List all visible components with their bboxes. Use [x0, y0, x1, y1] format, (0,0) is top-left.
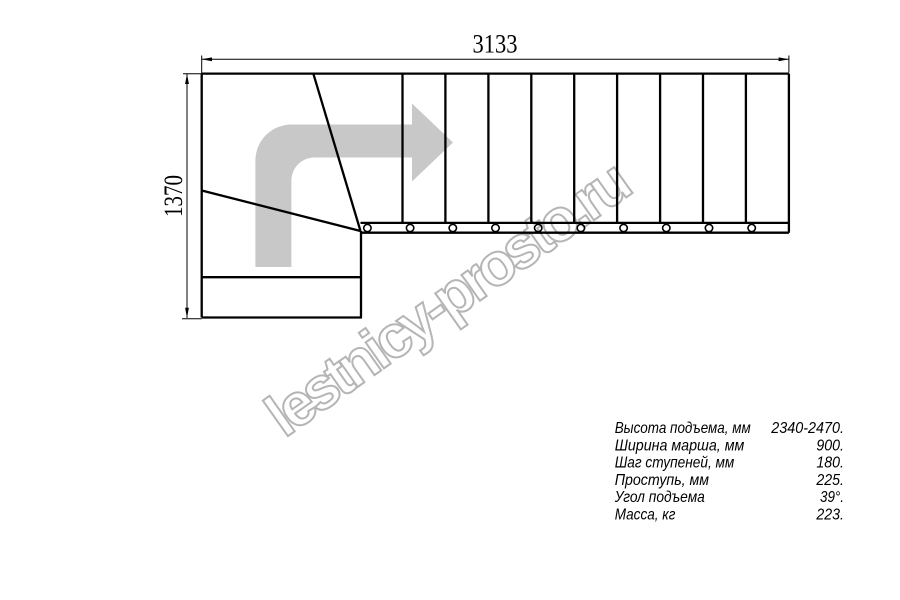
svg-text:Высота подъема, мм: Высота подъема, мм — [615, 420, 751, 437]
svg-text:Проступь, мм: Проступь, мм — [615, 472, 709, 489]
svg-text:lestnicy-prosto.ru: lestnicy-prosto.ru — [253, 147, 643, 450]
svg-text:180.: 180. — [816, 455, 844, 472]
svg-text:Шаг ступеней, мм: Шаг ступеней, мм — [615, 455, 735, 472]
svg-text:225.: 225. — [816, 472, 844, 489]
svg-text:Ширина марша, мм: Ширина марша, мм — [615, 437, 745, 454]
svg-text:1370: 1370 — [159, 175, 188, 217]
svg-text:3133: 3133 — [473, 29, 518, 58]
svg-text:39°.: 39°. — [820, 489, 844, 506]
svg-text:Угол подъема: Угол подъема — [614, 489, 705, 506]
svg-text:Масса, кг: Масса, кг — [615, 507, 676, 524]
svg-text:223.: 223. — [816, 507, 844, 524]
svg-text:2340-2470.: 2340-2470. — [770, 420, 844, 437]
svg-text:900.: 900. — [816, 437, 844, 454]
